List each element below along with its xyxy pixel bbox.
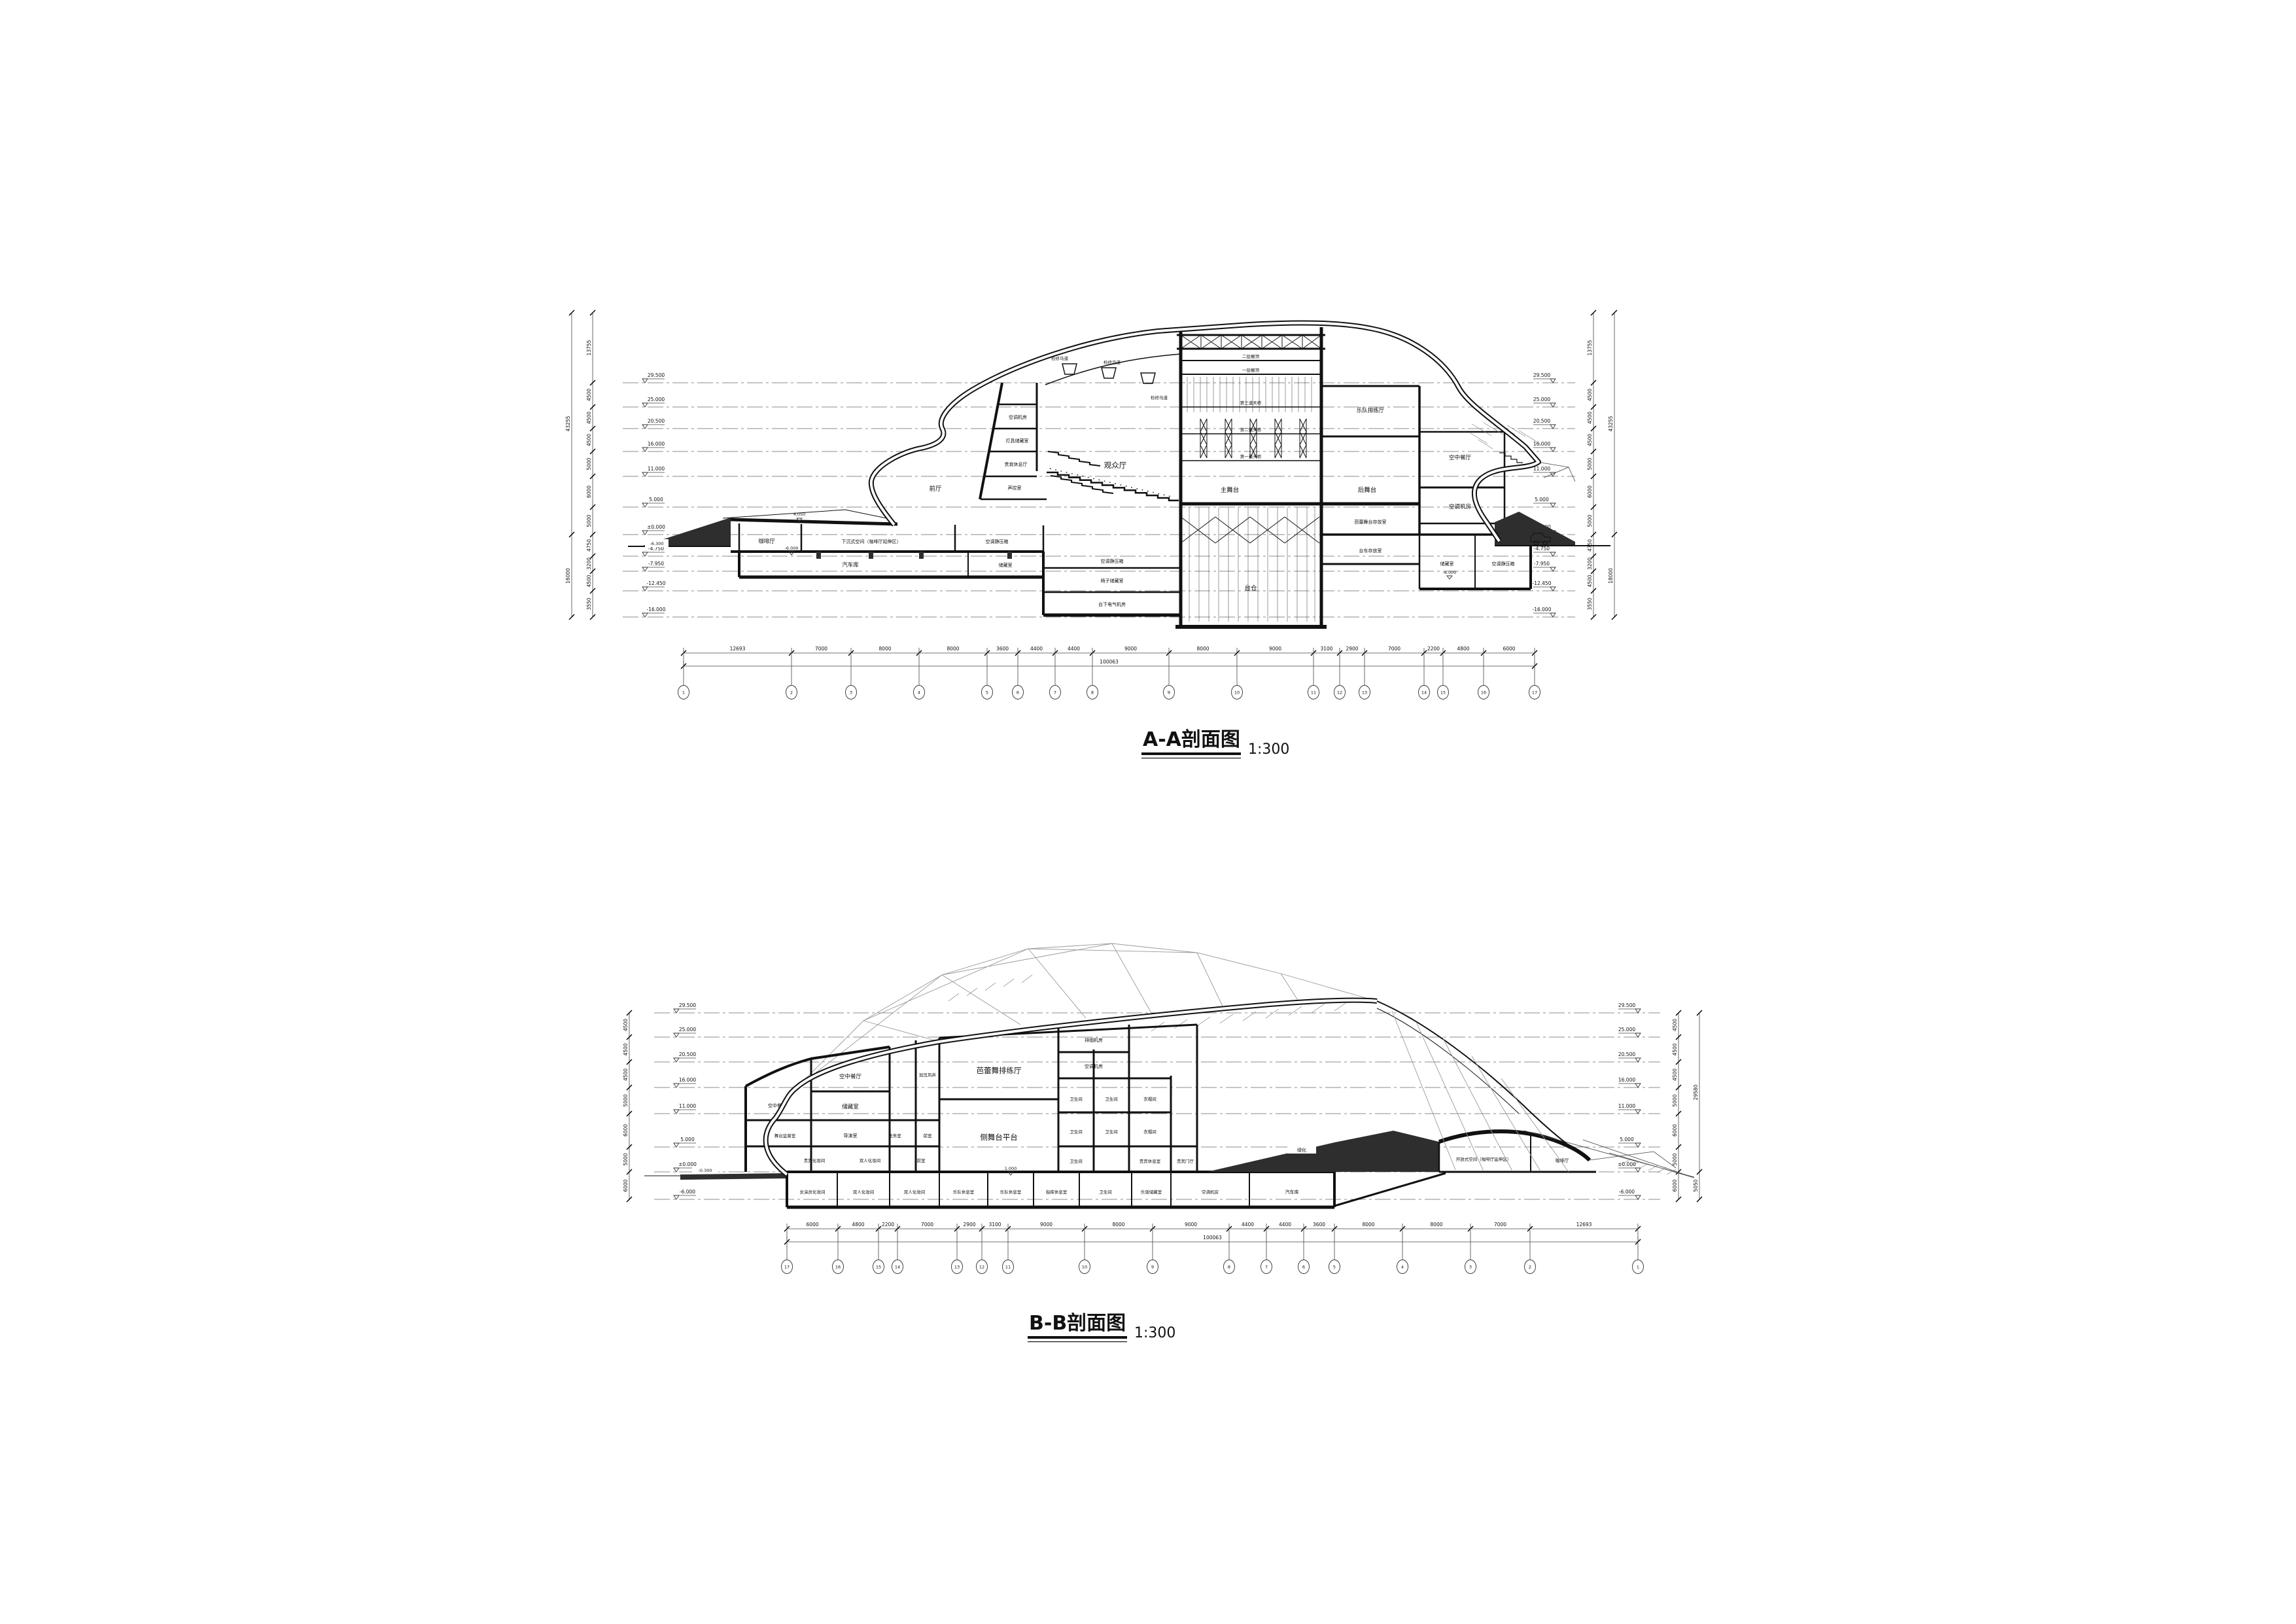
room-label-sound: 声控室	[1008, 485, 1022, 491]
aa-bottom-dims: 1269370008000800036004400440090008000900…	[681, 646, 1537, 656]
svg-text:±0.000: ±0.000	[647, 524, 665, 530]
aa-catwalk-label-2: 检修马道	[1104, 359, 1121, 365]
svg-text:5000: 5000	[623, 1153, 629, 1165]
svg-text:12693: 12693	[1576, 1222, 1592, 1227]
aa-sunken-level: -6.000	[785, 546, 799, 551]
svg-text:4800: 4800	[1457, 646, 1469, 652]
aa-beak-stair	[1499, 453, 1523, 463]
room-label-wc5: 卫生间	[1070, 1158, 1083, 1164]
room-label-band1: 乐队休息室	[953, 1189, 975, 1195]
room-label-storage2: 储藏室	[1440, 561, 1454, 567]
svg-text:4500: 4500	[1587, 412, 1593, 424]
room-label-wc1: 卫生间	[1070, 1096, 1083, 1102]
room-label-med: 医务室	[888, 1133, 901, 1139]
svg-text:11.000: 11.000	[1618, 1103, 1635, 1109]
bb-pavilion-roof	[1439, 1131, 1590, 1160]
svg-text:-6.000: -6.000	[680, 1189, 695, 1195]
svg-text:5.000: 5.000	[1535, 497, 1549, 503]
room-label-vipdress: 贵宾化妆间	[804, 1157, 826, 1163]
aa-pit-bracing	[1181, 517, 1319, 543]
aa-scale: 1:300	[1248, 741, 1289, 758]
aa-tower-incline-wall	[980, 383, 1002, 499]
room-label-elec: 台下电气机房	[1098, 601, 1126, 607]
svg-text:29.500: 29.500	[648, 372, 665, 378]
aa-chain-left: 1375545004500450050006000500047503200450…	[586, 310, 595, 620]
svg-text:29580: 29580	[1693, 1084, 1699, 1100]
svg-text:7000: 7000	[815, 646, 827, 652]
room-label-dir: 导演室	[844, 1133, 858, 1139]
svg-text:11.000: 11.000	[679, 1103, 696, 1109]
svg-text:2: 2	[1529, 1265, 1531, 1270]
aa-title-underline-2	[1141, 758, 1241, 758]
room-label-sky1: 空中餐厅	[839, 1073, 862, 1080]
room-label-ahutop: 空调机房	[1085, 1063, 1103, 1069]
svg-text:6000: 6000	[806, 1222, 818, 1227]
bb-street-strip	[680, 1173, 787, 1180]
svg-text:4400: 4400	[1279, 1222, 1291, 1227]
svg-text:29.500: 29.500	[1618, 1002, 1635, 1008]
svg-text:4500: 4500	[1672, 1068, 1678, 1081]
bb-terrain-wedge	[1207, 1131, 1439, 1172]
svg-text:4500: 4500	[586, 389, 592, 401]
bb-one-level: 1.000	[1005, 1166, 1017, 1171]
svg-text:15: 15	[1440, 690, 1446, 696]
svg-text:13755: 13755	[586, 340, 592, 355]
svg-text:3100: 3100	[1320, 646, 1332, 652]
svg-text:14: 14	[895, 1265, 900, 1270]
drawing-sheet: 29.50029.50025.00025.00020.50020.50016.0…	[0, 0, 2296, 1624]
aa-rb2-flag-icon	[1447, 576, 1452, 579]
svg-text:4500: 4500	[623, 1068, 629, 1081]
room-label-wc3: 卫生间	[1070, 1129, 1083, 1135]
svg-text:43255: 43255	[1608, 415, 1614, 431]
svg-text:6: 6	[1017, 690, 1019, 696]
svg-text:4800: 4800	[852, 1222, 864, 1227]
svg-text:11.000: 11.000	[1533, 466, 1550, 472]
svg-text:5: 5	[986, 690, 988, 696]
room-label-br1: 第一道天桥	[1240, 453, 1262, 459]
room-label-storageb: 储藏室	[842, 1103, 859, 1110]
aa-mound-level: 4.050	[793, 512, 806, 517]
room-label-foyer: 前厅	[929, 485, 942, 493]
room-label-chair: 椅子储藏室	[1101, 578, 1124, 584]
svg-text:4500: 4500	[1587, 434, 1593, 446]
svg-text:-6.000: -6.000	[1619, 1189, 1635, 1195]
svg-text:2200: 2200	[1427, 646, 1440, 652]
svg-text:14: 14	[1421, 690, 1427, 696]
svg-text:43255: 43255	[565, 415, 571, 431]
svg-text:5000: 5000	[1587, 457, 1593, 470]
aa-truss-chords	[1177, 335, 1325, 349]
svg-text:-16.000: -16.000	[647, 607, 666, 612]
svg-text:16.000: 16.000	[648, 441, 665, 447]
svg-text:20.500: 20.500	[1618, 1051, 1635, 1057]
bb-basement-ramp	[1334, 1173, 1446, 1206]
room-label-wcb: 卫生间	[1099, 1189, 1112, 1195]
room-label-openspace: 开放式空间（咖啡厅延伸区）	[1456, 1156, 1512, 1162]
svg-text:4500: 4500	[1672, 1043, 1678, 1055]
bb-title-underline	[1028, 1336, 1127, 1339]
bb-scale: 1:300	[1134, 1325, 1175, 1341]
room-label-grid2: 二层栅顶	[1242, 353, 1260, 359]
svg-text:16.000: 16.000	[1618, 1077, 1635, 1083]
svg-text:3600: 3600	[996, 646, 1009, 652]
room-label-ballethall: 芭蕾舞排练厅	[977, 1066, 1022, 1075]
svg-text:13: 13	[1362, 690, 1367, 696]
bb-cone-inner	[1377, 1008, 1519, 1114]
svg-text:2900: 2900	[1346, 646, 1358, 652]
room-label-skyrest: 空中餐厅	[1449, 454, 1472, 461]
svg-text:4500: 4500	[586, 574, 592, 587]
aa-balcony-1	[1048, 451, 1100, 466]
aa-batten-trusses	[1200, 419, 1306, 458]
svg-text:4400: 4400	[1030, 646, 1043, 652]
aa-bottom-total: 100063	[681, 659, 1537, 669]
bb-ramp	[1524, 1131, 1694, 1178]
svg-text:13: 13	[954, 1265, 960, 1270]
svg-text:-16.000: -16.000	[1533, 607, 1552, 612]
room-label-cloak2: 衣帽间	[1143, 1129, 1157, 1135]
aa-mound-outline	[723, 510, 893, 520]
svg-text:5000: 5000	[1672, 1094, 1678, 1106]
svg-text:-12.450: -12.450	[1533, 580, 1552, 586]
bb-building: -0.300 女演员化妆间 双人化妆间 双人化妆间 乐队休息室 乐队休息室 指挥…	[644, 944, 1694, 1207]
svg-text:16: 16	[835, 1265, 841, 1270]
room-label-vip: 贵宾休息厅	[1005, 461, 1028, 467]
svg-text:7000: 7000	[1388, 646, 1400, 652]
svg-text:3100: 3100	[988, 1222, 1001, 1227]
svg-text:2900: 2900	[963, 1222, 975, 1227]
aa-rb2-level: -6.000	[1443, 570, 1457, 575]
svg-text:18000: 18000	[1608, 568, 1614, 584]
svg-text:25.000: 25.000	[679, 1027, 696, 1033]
svg-text:6000: 6000	[1503, 646, 1515, 652]
svg-text:8: 8	[1091, 690, 1094, 696]
room-label-trolley: 台车存放室	[1359, 548, 1382, 554]
room-label-grid1: 一层栅顶	[1242, 367, 1260, 373]
bb-bottom-dims: 6000480022007000290031009000800090004400…	[784, 1222, 1641, 1231]
room-label-ahu2: 空调机房	[1449, 503, 1471, 510]
svg-text:-7.950: -7.950	[648, 561, 664, 567]
svg-text:3200: 3200	[1587, 557, 1593, 570]
svg-text:12: 12	[979, 1265, 984, 1270]
svg-text:1: 1	[1637, 1265, 1639, 1270]
svg-text:4: 4	[1401, 1265, 1404, 1270]
room-label-auditorium: 观众厅	[1104, 461, 1127, 470]
svg-text:13755: 13755	[1587, 340, 1593, 355]
room-label-plenum3: 空调静压箱	[1492, 561, 1515, 567]
svg-text:6000: 6000	[623, 1124, 629, 1137]
svg-text:20.500: 20.500	[679, 1051, 696, 1057]
room-label-garageb: 汽车库	[1285, 1189, 1299, 1195]
svg-text:6: 6	[1302, 1265, 1305, 1270]
svg-text:-7.950: -7.950	[1534, 561, 1550, 567]
svg-text:29.500: 29.500	[679, 1002, 696, 1008]
aa-catwalk-label-3: 检修马道	[1151, 395, 1168, 400]
svg-text:3: 3	[850, 690, 852, 696]
svg-text:9000: 9000	[1269, 646, 1281, 652]
svg-text:4500: 4500	[586, 434, 592, 446]
svg-text:8000: 8000	[947, 646, 959, 652]
svg-text:11: 11	[1311, 690, 1316, 696]
bb-section: 29.50029.50025.00025.00020.50020.50016.0…	[623, 944, 1702, 1342]
aa-terrain-right	[1495, 512, 1575, 546]
svg-text:10: 10	[1234, 690, 1240, 696]
svg-text:6000: 6000	[1587, 485, 1593, 498]
svg-text:9000: 9000	[1185, 1222, 1197, 1227]
bb-basement-walls	[837, 1172, 1249, 1207]
room-label-storage: 储藏室	[999, 562, 1013, 568]
svg-text:8000: 8000	[1362, 1222, 1374, 1227]
room-label-score: 乐谱储藏室	[1141, 1189, 1162, 1195]
aa-truss-web	[1181, 335, 1321, 349]
room-label-viprest: 贵宾休息室	[1139, 1158, 1161, 1164]
svg-text:3550: 3550	[1587, 597, 1593, 610]
svg-text:12: 12	[1337, 690, 1342, 696]
svg-text:5.000: 5.000	[1620, 1137, 1634, 1142]
room-label-cloak1: 衣帽间	[1143, 1096, 1157, 1102]
room-label-mgr: 舞台监督室	[774, 1133, 796, 1139]
svg-text:25.000: 25.000	[648, 397, 665, 402]
room-label-sunken: 下沉式空间（咖啡厅延伸区）	[842, 538, 901, 544]
svg-text:9: 9	[1151, 1265, 1154, 1270]
room-label-sidestage: 侧舞台平台	[980, 1133, 1018, 1142]
room-label-orch: 乐队排练厅	[1357, 407, 1385, 414]
svg-text:20.500: 20.500	[648, 418, 665, 424]
aa-chain-right-total: 4325518000	[1608, 310, 1617, 620]
svg-text:8000: 8000	[1112, 1222, 1124, 1227]
svg-text:16000: 16000	[565, 568, 571, 584]
aa-chain-left-total: 4325516000	[565, 310, 574, 620]
bb-title: B-B剖面图	[1029, 1312, 1126, 1335]
room-label-lamp: 灯具储藏室	[1006, 438, 1029, 444]
bb-title-underline-2	[1028, 1341, 1127, 1342]
svg-text:5000: 5000	[586, 457, 592, 470]
svg-text:9000: 9000	[1040, 1222, 1052, 1227]
room-label-ballet: 芭蕾舞台存放室	[1355, 519, 1387, 525]
svg-text:2200: 2200	[882, 1222, 894, 1227]
svg-text:3200: 3200	[586, 557, 592, 570]
svg-text:-4.750: -4.750	[1534, 546, 1550, 552]
room-label-wc4: 卫生间	[1105, 1129, 1118, 1135]
room-label-shaft: 加压风井	[919, 1072, 937, 1078]
svg-text:6000: 6000	[1672, 1179, 1678, 1192]
svg-text:20.500: 20.500	[1533, 418, 1550, 424]
svg-text:5.000: 5.000	[680, 1137, 695, 1142]
svg-text:6000: 6000	[1672, 1124, 1678, 1137]
svg-text:7000: 7000	[921, 1222, 933, 1227]
svg-text:4400: 4400	[1242, 1222, 1254, 1227]
room-label-conductor: 指挥休息室	[1046, 1189, 1068, 1195]
room-label-cafe: 咖啡厅	[758, 538, 775, 545]
aa-level-grid: 29.50029.50025.00025.00020.50020.50016.0…	[623, 372, 1575, 617]
svg-text:4400: 4400	[1068, 646, 1080, 652]
svg-text:4500: 4500	[1672, 1019, 1678, 1031]
svg-text:6000: 6000	[623, 1179, 629, 1192]
room-label-rearstage: 后舞台	[1358, 486, 1377, 494]
room-label-pit: 台仓	[1244, 584, 1257, 592]
svg-text:11.000: 11.000	[648, 466, 665, 472]
svg-text:4500: 4500	[1587, 574, 1593, 587]
svg-text:11: 11	[1005, 1265, 1011, 1270]
svg-text:4750: 4750	[586, 539, 592, 552]
room-label-ante2: 前室	[917, 1157, 926, 1163]
bb-chain-right-total: 295805050	[1693, 1010, 1702, 1202]
svg-text:5000: 5000	[586, 514, 592, 527]
room-label-plenum: 空调静压箱	[986, 538, 1009, 544]
svg-text:25.000: 25.000	[1533, 397, 1550, 402]
svg-text:7000: 7000	[1494, 1222, 1506, 1227]
svg-text:8000: 8000	[1430, 1222, 1442, 1227]
svg-text:4: 4	[918, 690, 920, 696]
bb-green-label: 绿化	[1297, 1147, 1306, 1153]
room-label-band2: 乐队休息室	[1000, 1189, 1022, 1195]
svg-text:15: 15	[876, 1265, 881, 1270]
room-label-wc2: 卫生间	[1105, 1096, 1118, 1102]
bb-chain-left: 4500450045005000600050006000	[623, 1010, 632, 1202]
svg-text:5000: 5000	[1672, 1153, 1678, 1165]
svg-text:8000: 8000	[878, 646, 891, 652]
aa-section: 29.50029.50025.00025.00020.50020.50016.0…	[565, 310, 1617, 758]
room-label-smoke: 排烟机房	[1085, 1037, 1103, 1043]
room-label-br2: 第二道天桥	[1240, 427, 1262, 432]
svg-text:100063: 100063	[1203, 1235, 1222, 1241]
room-label-mainstage: 主舞台	[1221, 486, 1240, 494]
svg-text:5050: 5050	[1693, 1179, 1699, 1192]
bb-level-grid: 29.50029.50025.00025.00020.50020.50016.0…	[654, 1002, 1660, 1199]
room-label-actress: 女演员化妆间	[800, 1189, 826, 1195]
svg-text:8: 8	[1228, 1265, 1230, 1270]
svg-text:5: 5	[1333, 1265, 1336, 1270]
aa-title: A-A剖面图	[1143, 728, 1240, 751]
room-label-viphall: 贵宾门厅	[1177, 1158, 1194, 1164]
bb-street-level: -0.300	[699, 1168, 712, 1173]
svg-text:3: 3	[1469, 1265, 1472, 1270]
svg-text:-12.450: -12.450	[647, 580, 666, 586]
svg-text:9: 9	[1168, 690, 1170, 696]
svg-text:16: 16	[1481, 690, 1486, 696]
aa-plaza-slab	[731, 520, 897, 524]
svg-text:7: 7	[1054, 690, 1056, 696]
svg-text:17: 17	[1532, 690, 1537, 696]
room-label-dbldress1: 双人化妆间	[853, 1189, 875, 1195]
sections-sheet-svg: 29.50029.50025.00025.00020.50020.50016.0…	[0, 0, 2296, 1624]
svg-text:2: 2	[790, 690, 793, 696]
room-label-br3: 第三道天桥	[1240, 400, 1262, 406]
svg-text:17: 17	[784, 1265, 790, 1270]
svg-text:100063: 100063	[1100, 659, 1119, 665]
svg-text:29.500: 29.500	[1533, 372, 1550, 378]
svg-text:4500: 4500	[623, 1019, 629, 1031]
svg-text:8000: 8000	[1196, 646, 1209, 652]
room-label-ante1: 前室	[924, 1133, 933, 1139]
aa-title-underline	[1141, 752, 1241, 755]
room-label-dbldress3: 双人化妆间	[860, 1157, 881, 1163]
bb-bottom-total: 100063	[784, 1235, 1641, 1244]
svg-text:±0.000: ±0.000	[1618, 1161, 1636, 1167]
aa-street-level: -6.300	[650, 541, 664, 546]
svg-text:10: 10	[1082, 1265, 1087, 1270]
svg-text:5000: 5000	[1587, 514, 1593, 527]
svg-text:3600: 3600	[1313, 1222, 1325, 1227]
room-label-ahub: 空调机房	[1202, 1189, 1219, 1195]
svg-text:4500: 4500	[623, 1043, 629, 1055]
aa-garage-walls	[739, 552, 1043, 577]
svg-text:6000: 6000	[586, 485, 592, 498]
aa-stalls-rake	[1047, 472, 1179, 501]
svg-text:5.000: 5.000	[649, 497, 663, 503]
svg-text:3550: 3550	[586, 597, 592, 610]
aa-building: -6.300 4.050 咖啡厅 下沉式空间（咖啡厅延伸区） 空调静压箱 -6.…	[628, 323, 1610, 627]
svg-text:12693: 12693	[730, 646, 746, 652]
aa-chain-right: 1375545004500450050006000500047503200450…	[1587, 310, 1596, 620]
svg-text:5000: 5000	[623, 1094, 629, 1106]
room-label-garage: 汽车库	[842, 561, 859, 569]
room-label-plenum2: 空调静压箱	[1101, 558, 1124, 564]
svg-text:1: 1	[682, 690, 685, 696]
svg-text:7: 7	[1265, 1265, 1268, 1270]
svg-text:4500: 4500	[586, 412, 592, 424]
room-label-ahu: 空调机房	[1009, 414, 1027, 420]
aa-pit-guides	[1189, 507, 1315, 622]
svg-text:16.000: 16.000	[679, 1077, 696, 1083]
aa-pit-walls	[1181, 504, 1321, 627]
svg-text:9000: 9000	[1124, 646, 1137, 652]
room-label-dbldress2: 双人化妆间	[904, 1189, 926, 1195]
svg-text:25.000: 25.000	[1618, 1027, 1635, 1033]
svg-text:4500: 4500	[1587, 389, 1593, 401]
svg-text:16.000: 16.000	[1533, 441, 1550, 447]
